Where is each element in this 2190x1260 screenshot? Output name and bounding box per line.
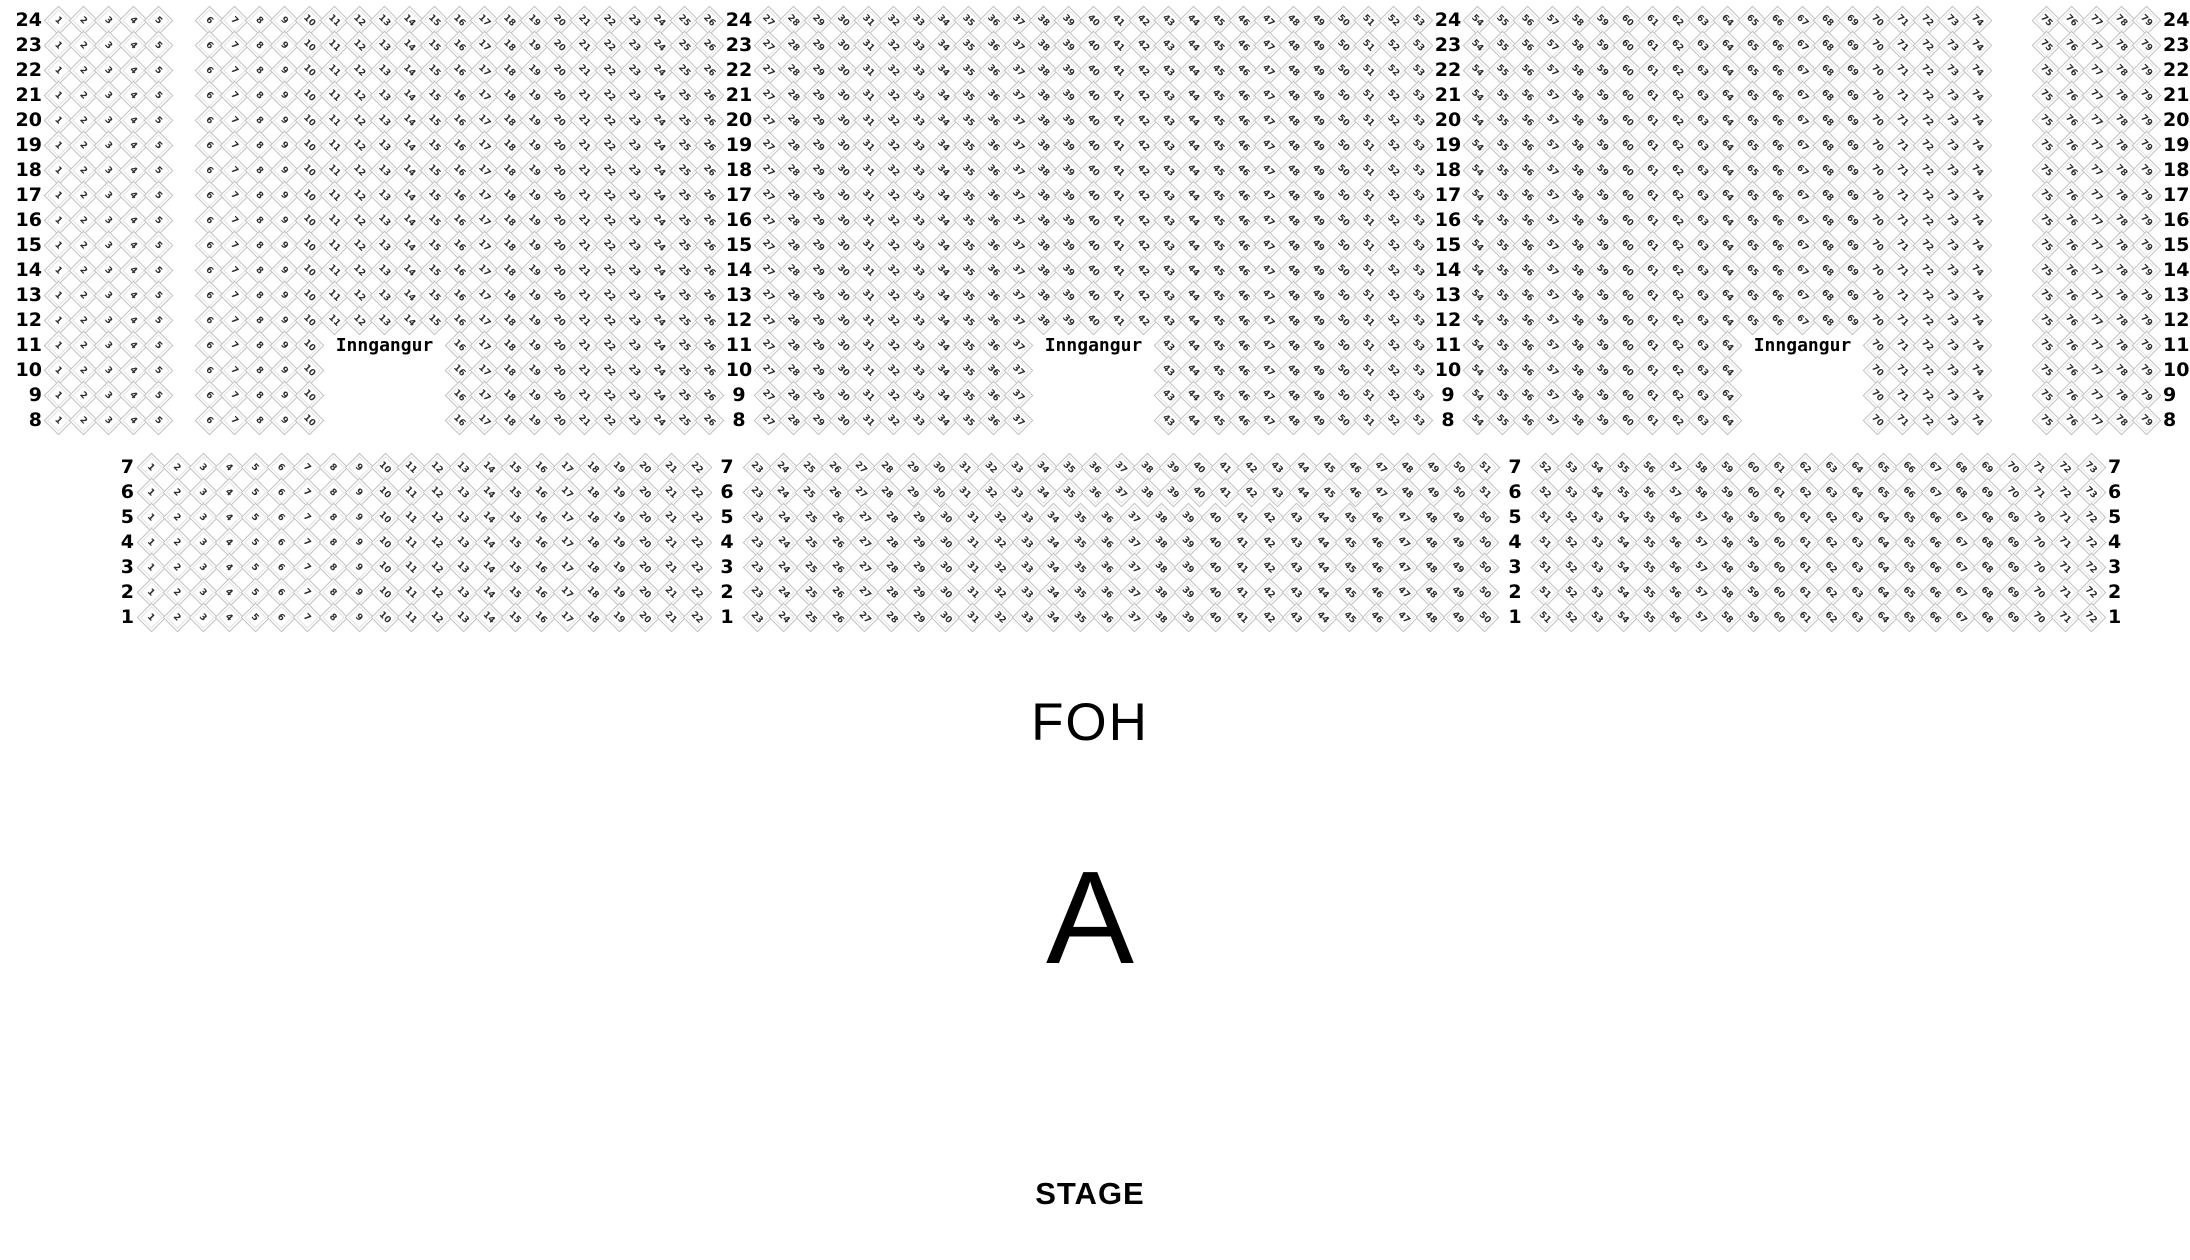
seat-number: 37 xyxy=(1001,403,1036,438)
row-label: 5 xyxy=(90,505,138,530)
row-label: 5 xyxy=(2104,505,2142,530)
row-label: 7 xyxy=(2104,455,2142,480)
lower-seating-block: 7123456789101112131415161718192021227232… xyxy=(90,455,2142,630)
seat-row: 6123456789101112131415161718192021226232… xyxy=(90,480,2142,505)
seat-number: 26 xyxy=(692,403,727,438)
seat-number: 74 xyxy=(1960,403,1995,438)
entrance-gap xyxy=(1740,358,1865,383)
entrance-gap xyxy=(322,408,447,433)
row-label: 4 xyxy=(2104,530,2142,555)
seat-section: 2728293031323334353637434445464748495051… xyxy=(756,383,1431,408)
seat-row: 9123456789101617181920212223242526927282… xyxy=(8,383,2190,408)
entrance-gap xyxy=(1031,408,1156,433)
seat-number: 5 xyxy=(141,403,176,438)
seat-number: 79 xyxy=(2129,403,2164,438)
seat-row: 7123456789101112131415161718192021227232… xyxy=(90,455,2142,480)
seat-section: 12345678910111213141516171819202122 xyxy=(138,530,710,555)
seat[interactable]: 79 xyxy=(2134,408,2159,433)
seat-section: 5253545556575859606162636465666768697071… xyxy=(1532,455,2104,480)
row-label: 6 xyxy=(90,480,138,505)
seat-section: 2728293031323334353637434445464748495051… xyxy=(756,408,1431,433)
entrance-gap xyxy=(322,383,447,408)
seat[interactable]: 37 xyxy=(1006,408,1031,433)
seat-row: 1212345678910111213141516171819202122232… xyxy=(8,308,2190,333)
seat[interactable]: 26 xyxy=(697,408,722,433)
seat[interactable]: 74 xyxy=(1965,408,1990,433)
entrance-gap xyxy=(1031,383,1156,408)
seat[interactable]: 53 xyxy=(1406,408,1431,433)
seat-row: 4123456789101112131415161718192021224232… xyxy=(90,530,2142,555)
seat-number: 10 xyxy=(292,403,327,438)
row-label: 6 xyxy=(2104,480,2142,505)
seat-number: 64 xyxy=(1710,403,1745,438)
seat-section: 2324252627282930313233343536373839404142… xyxy=(744,530,1498,555)
upper-seating-block: 2412345678910111213141516171819202122232… xyxy=(8,8,2190,433)
seat-section: 2324252627282930313233343536373839404142… xyxy=(744,480,1498,505)
seat-row: 5123456789101112131415161718192021225232… xyxy=(90,505,2142,530)
seat-number: 53 xyxy=(1401,403,1436,438)
seat-section: 12345678910111213141516171819202122 xyxy=(138,455,710,480)
seat-section: 5152535455565758596061626364656667686970… xyxy=(1532,530,2104,555)
seat-section: 12345678910111213141516171819202122 xyxy=(138,555,710,580)
seat-section: 12345678910111213141516171819202122 xyxy=(138,505,710,530)
row-label: 3 xyxy=(90,555,138,580)
entrance-gap xyxy=(1740,383,1865,408)
seat-section: 12345 xyxy=(46,408,171,433)
seat-section: 2324252627282930313233343536373839404142… xyxy=(744,505,1498,530)
seat-section: 2728293031323334353637434445464748495051… xyxy=(756,358,1431,383)
seat-section: 5253545556575859606162636465666768697071… xyxy=(1532,480,2104,505)
seat[interactable]: 64 xyxy=(1715,408,1740,433)
seat-section: 7576777879 xyxy=(2034,408,2159,433)
seat-row: 1012345678910161718192021222324252610272… xyxy=(8,358,2190,383)
row-label: 7 xyxy=(90,455,138,480)
entrance-gap xyxy=(1740,408,1865,433)
seat-section: 2728293031323334353637383940414243444546… xyxy=(756,308,1431,333)
seat[interactable]: 5 xyxy=(146,408,171,433)
seat-section: 5152535455565758596061626364656667686970… xyxy=(1532,505,2104,530)
entrance-gap xyxy=(1031,358,1156,383)
entrance-gap xyxy=(322,358,447,383)
seat-section: 6789101617181920212223242526 xyxy=(197,408,722,433)
seat-section: 54555657585960616263647071727374 xyxy=(1465,408,1990,433)
row-label: 4 xyxy=(90,530,138,555)
seat-row: 8123456789101617181920212223242526827282… xyxy=(8,408,2190,433)
seat-row: 3123456789101112131415161718192021223232… xyxy=(90,555,2142,580)
seat-section: 12345678910111213141516171819202122 xyxy=(138,480,710,505)
seat[interactable]: 10 xyxy=(297,408,322,433)
